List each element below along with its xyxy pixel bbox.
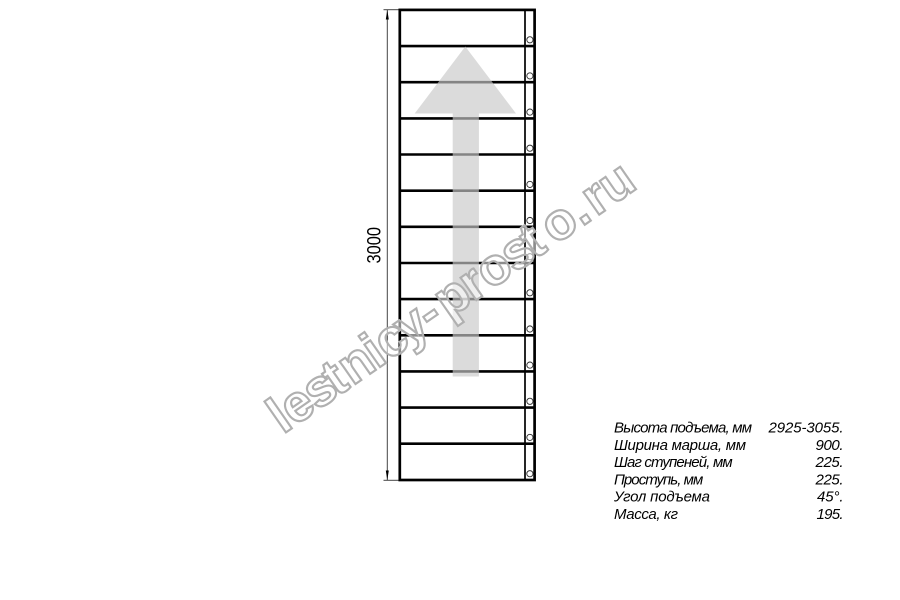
svg-text:45°.: 45°. bbox=[817, 489, 844, 506]
svg-text:2925-3055.: 2925-3055. bbox=[768, 420, 844, 437]
svg-text:Высота подъема, мм: Высота подъема, мм bbox=[614, 420, 752, 437]
svg-text:Ширина марша, мм: Ширина марша, мм bbox=[614, 437, 746, 454]
svg-text:900.: 900. bbox=[816, 437, 844, 454]
svg-text:3000: 3000 bbox=[365, 227, 386, 263]
svg-text:195.: 195. bbox=[817, 506, 844, 523]
svg-text:225.: 225. bbox=[815, 454, 844, 471]
svg-text:lestnicy-prosto.ru: lestnicy-prosto.ru bbox=[257, 149, 646, 444]
svg-text:225.: 225. bbox=[815, 471, 844, 488]
svg-text:Шаг ступеней, мм: Шаг ступеней, мм bbox=[614, 454, 733, 471]
svg-text:Проступь, мм: Проступь, мм bbox=[614, 471, 703, 488]
svg-text:Масса, кг: Масса, кг bbox=[614, 506, 679, 523]
svg-text:Угол подъема: Угол подъема bbox=[613, 489, 710, 506]
